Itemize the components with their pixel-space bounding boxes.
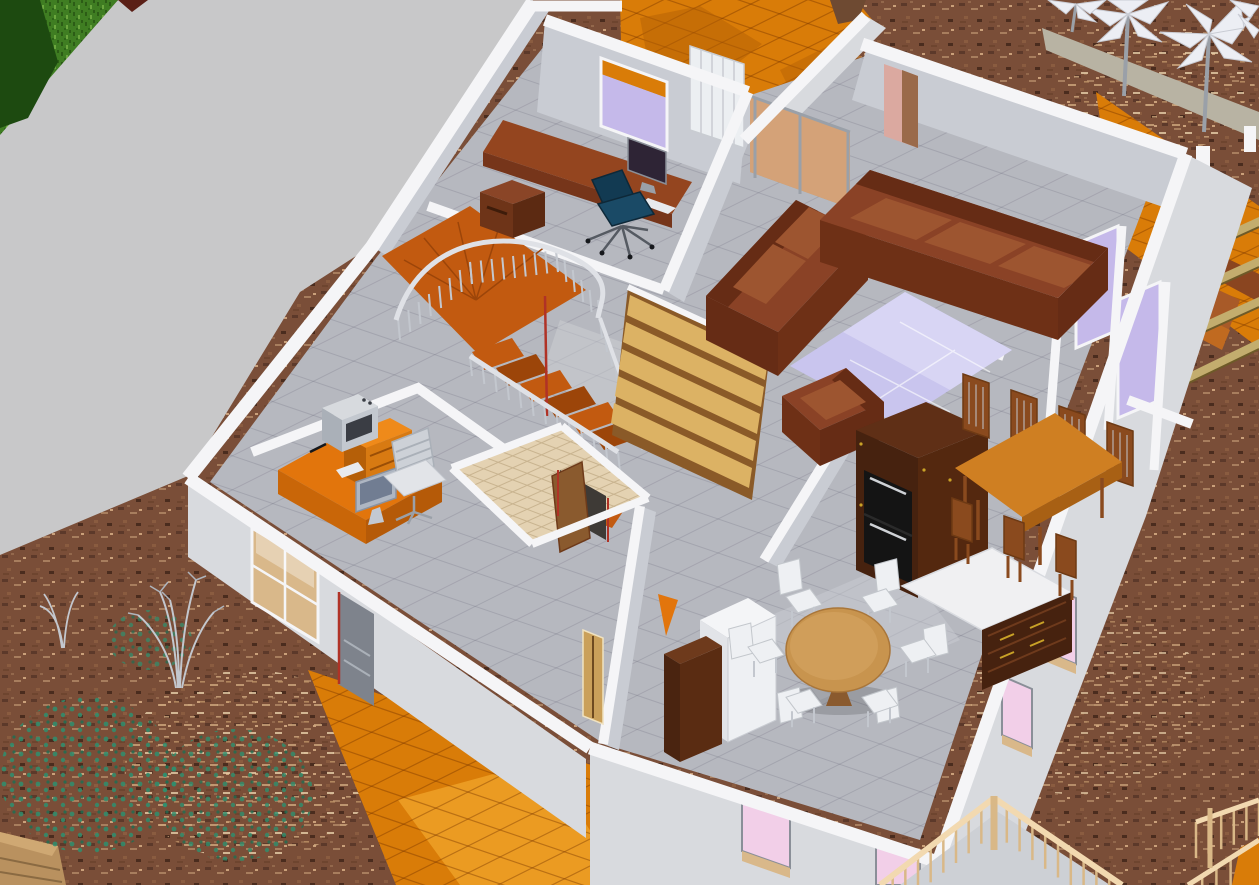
shrub-dots — [0, 697, 176, 853]
white-chair-back — [875, 559, 900, 595]
dining-chair — [1004, 516, 1024, 560]
floorplan-3d-render: 3D isometric cutaway rendering of a sing… — [0, 0, 1259, 885]
sideboard — [480, 180, 545, 238]
window — [1002, 676, 1032, 757]
shrub-dots — [108, 610, 192, 670]
white-post — [1244, 126, 1256, 152]
shrub-dots — [157, 729, 313, 861]
door-opening — [884, 64, 918, 148]
dining-chair — [952, 498, 972, 542]
white-chair-back — [777, 559, 802, 595]
dining-chair — [1056, 534, 1076, 578]
sideboard — [664, 636, 722, 762]
white-chair-back — [729, 623, 754, 659]
floorplan-render-stage: 3D isometric cutaway rendering of a sing… — [0, 0, 1259, 885]
front-door-frame — [583, 630, 603, 724]
